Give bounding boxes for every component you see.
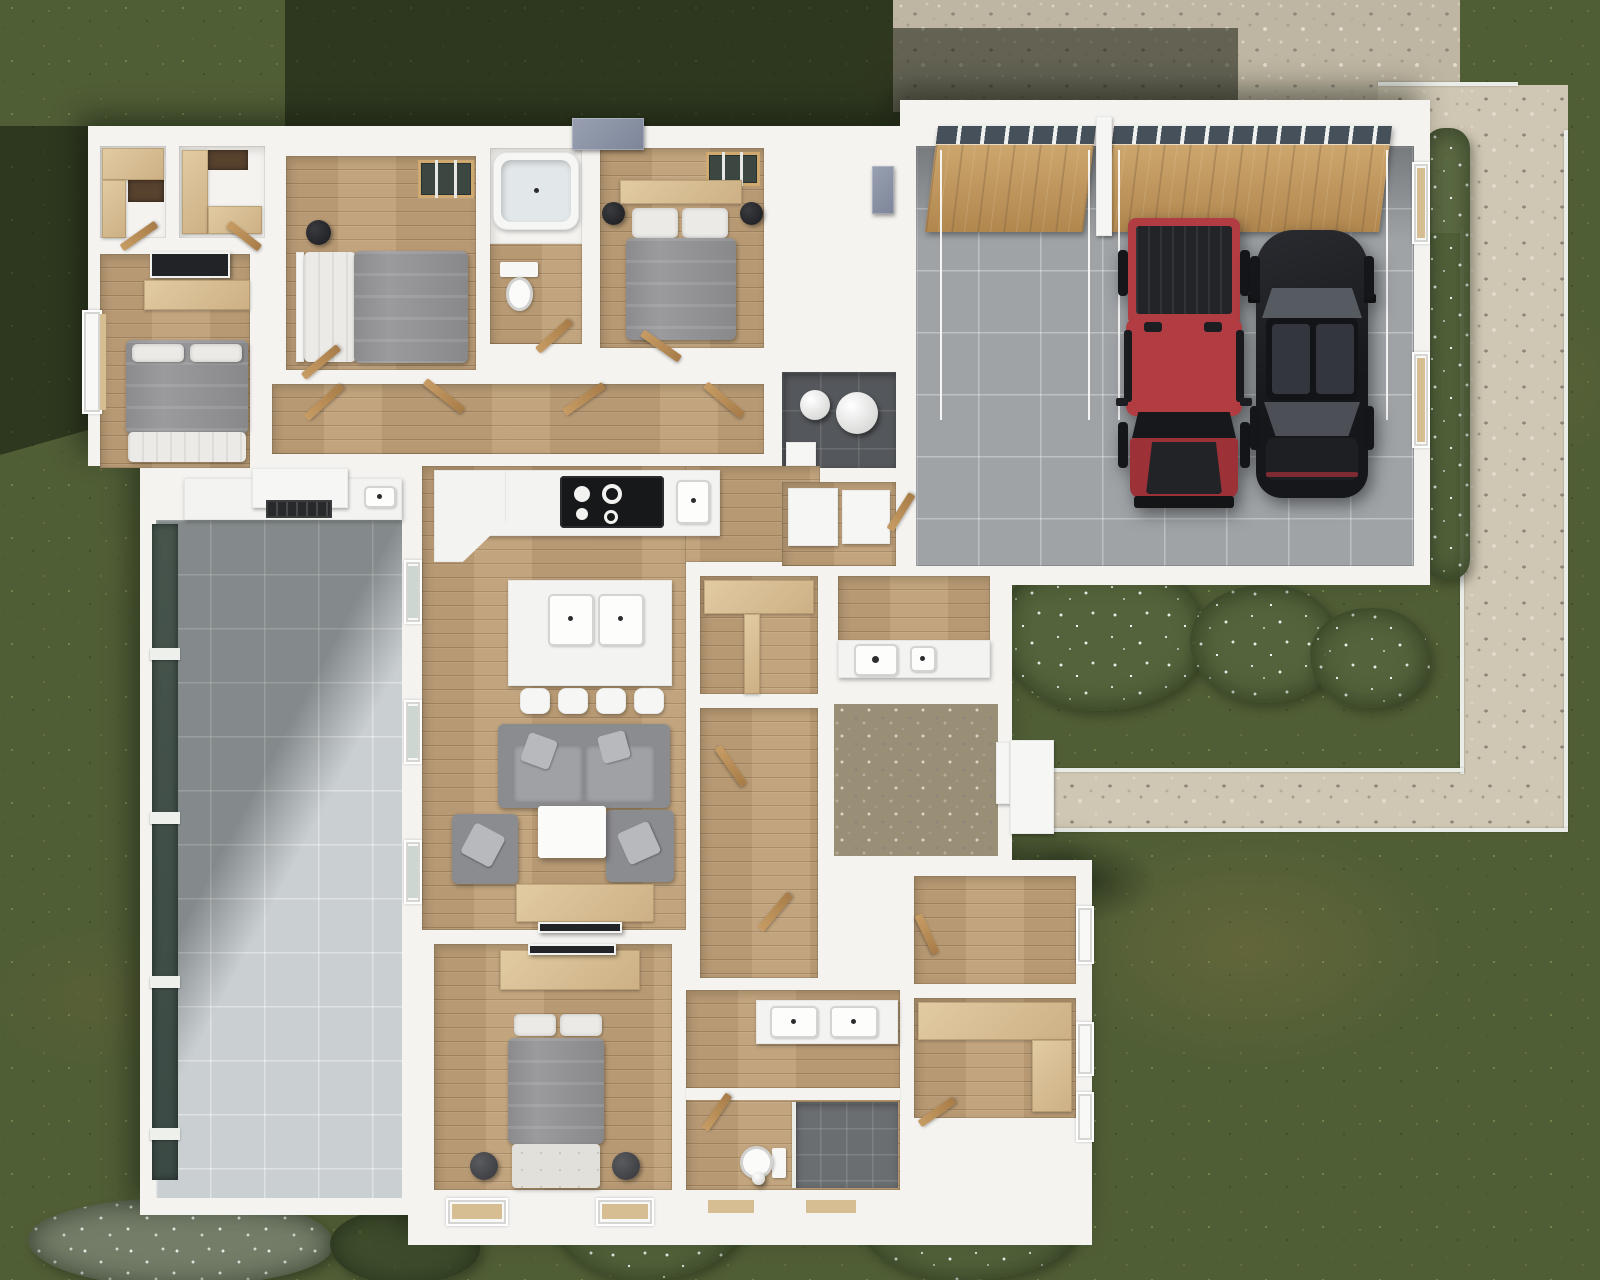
truck-bed [1136,226,1232,314]
cooktop-burner [576,508,588,520]
master-closet-counter-top [918,1002,1072,1040]
closet2-niche [208,150,248,170]
entry-foyer-floor [834,704,998,856]
master-bed-duvet [508,1038,604,1144]
master-pouf [470,1152,498,1180]
rooftop-ac-unit [572,118,644,150]
car-windshield [1262,288,1362,318]
truck-windshield [1132,412,1236,438]
master-window-sill [602,1204,648,1219]
bedroom1-wall-tv [150,252,230,278]
garage-door-windows [936,126,1096,144]
bedroom1-window [82,310,102,414]
car-sunroof-glass [1272,324,1310,394]
bedroom2-bed-mattress [304,252,356,362]
bath-wall [686,1088,900,1100]
closet2-shelf-left [182,150,208,234]
truck-cab-glass [1144,322,1162,332]
utility-tank-large [836,392,878,434]
truck-side-window [1124,330,1132,402]
bar-stool [520,688,550,714]
master-window-sill [452,1204,502,1219]
bar-stool [596,688,626,714]
aerial-floor-plan-render [0,0,1600,1280]
truck-cab-glass [1204,322,1222,332]
truck-cab-roof [1126,318,1242,416]
pantry-cabinet [842,490,890,544]
wc-toilet-tank [772,1148,786,1178]
bath-threshold [806,1200,856,1213]
patio-post [150,812,180,824]
garage-door-track [940,150,942,420]
vanity-faucet [851,1019,856,1024]
bedroom3-pillow [632,208,678,238]
black-sedan [1256,226,1368,502]
coffee-table [538,806,606,858]
pantry-shelf [704,580,814,614]
bath-threshold [708,1200,754,1213]
office-floor [914,876,1076,984]
car-wheel [1364,406,1374,450]
closet1-niche [128,180,164,202]
bedroom3-headboard-shelf [620,180,742,204]
closet1-shelf-return [102,180,126,238]
shower-glass [792,1102,796,1188]
car-taillight-bar [1266,472,1358,477]
laundry-faucet [920,656,925,661]
master-pillow [514,1014,556,1036]
bedroom1-pillow [190,344,242,362]
wc-paper-roll [752,1172,765,1185]
bedroom3-stool [602,202,625,225]
master-closet-window [1076,1022,1094,1076]
bedroom1-dresser [144,280,250,310]
car-sunroof-glass [1316,324,1354,394]
truck-wheel [1118,250,1128,296]
bedroom2-headboard [296,252,304,362]
garage-door-single [925,126,1096,232]
island-faucet [618,616,623,621]
cooktop-burner [604,510,618,524]
master-pillow [560,1014,602,1036]
truck-mirror [1116,398,1128,406]
living-tv [538,922,622,933]
patio-post [150,648,180,660]
master-pouf [612,1152,640,1180]
bedroom1-bed-foot [128,432,246,462]
truck-hood-scoop [1146,442,1222,494]
bedroom3-pillow [682,208,728,238]
master-closet-counter-right [1032,1040,1072,1112]
patio-light-shadow [156,520,402,1198]
patio-post [150,1128,180,1140]
patio-glass-wall [152,524,178,1180]
car-wheel [1250,256,1260,300]
patio-wall-glass [408,706,418,758]
washer-door [872,656,879,663]
media-console-living [516,884,654,922]
garage-window-sill [1417,168,1425,238]
bathtub-drain [534,188,539,193]
patio-wall-glass [408,566,418,618]
master-tv [528,944,616,955]
truck-wheel [1118,422,1128,468]
bar-stool [558,688,588,714]
island-faucet [568,616,573,621]
bedroom2-bed-duvet [354,251,468,363]
pantry-divider [744,614,760,694]
car-rear-glass [1264,402,1360,436]
entry-porch [1010,740,1054,834]
master-closet-window [1076,1092,1094,1142]
closet1-shelf [102,148,164,180]
office-window [1076,906,1094,964]
fridge-unit [788,488,838,546]
bedroom1-pillow [132,344,184,362]
truck-side-window [1236,330,1244,402]
cooktop-burner [602,484,622,504]
truck-grille [1134,496,1234,508]
bar-stool [634,688,664,714]
bedroom2-stool [306,220,331,245]
truck-wheel [1240,250,1250,296]
patio-wall-glass [408,846,418,898]
outdoor-faucet [377,494,382,499]
garage-door-track [1088,150,1090,420]
outdoor-grill [266,500,332,518]
bathroom1-toilet-bowl [506,277,533,311]
pickup-truck [1126,214,1242,506]
garage-window-sill [1417,358,1425,442]
bedroom1-window-sill [100,314,106,410]
kitchen-faucet [691,498,696,503]
car-wheel [1250,406,1260,450]
truck-mirror [1240,398,1252,406]
bathroom1-toilet-tank [500,262,538,277]
patio-post [150,976,180,988]
vanity-faucet [791,1019,796,1024]
garage-door-post [1096,116,1112,236]
master-bed-bench [512,1144,600,1188]
garage-door-track [1386,150,1388,420]
utility-tank-small [800,390,830,420]
car-wheel [1364,256,1374,300]
garage-ac-unit [872,166,894,214]
cooktop-burner [574,486,590,502]
front-door [996,742,1010,804]
walk-in-shower [794,1102,898,1188]
master-console [500,950,640,990]
utility-box [786,442,816,466]
bedroom3-stool [740,202,763,225]
garage-door-windows [1112,126,1392,144]
truck-wheel [1240,422,1250,468]
bedroom2-skylight [418,160,474,198]
hallway-top-floor [272,384,764,454]
bedroom3-bed-duvet [626,238,736,340]
